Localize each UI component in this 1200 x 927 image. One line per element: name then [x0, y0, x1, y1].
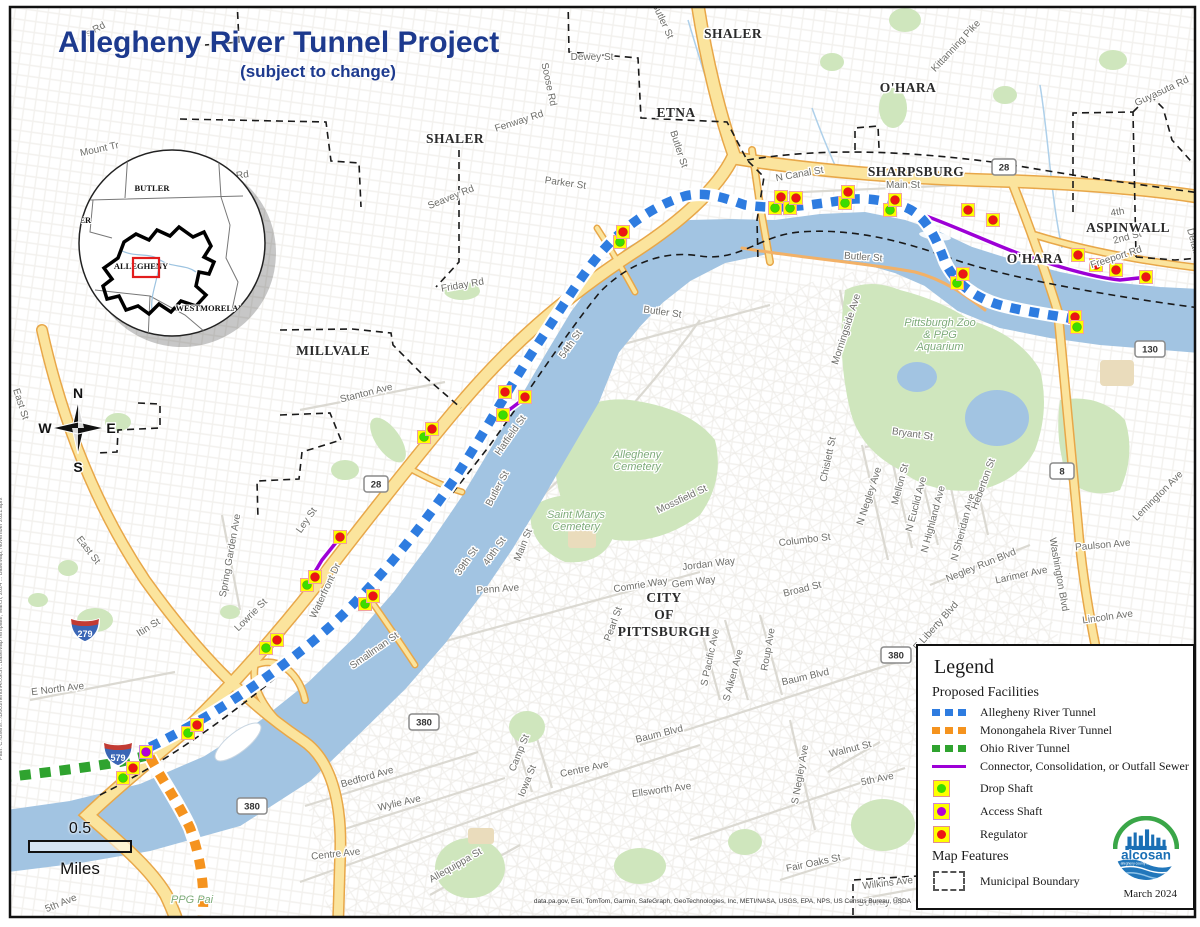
alcosan-logo-tagline: allegheny county sanitary authority — [1121, 861, 1172, 865]
document-path-note: Path: C:\Users\...\Documents\ArcGIS\...B… — [0, 498, 4, 761]
legend-symbol-dash — [932, 727, 972, 734]
map-document: s RdMount TrGeyer RdDewey StSoose RdFenw… — [0, 0, 1200, 927]
legend-symbol-line — [932, 765, 972, 769]
municipality-label: ETNA — [656, 105, 695, 120]
compass-south: S — [73, 459, 82, 475]
county-label: BUTLER — [135, 183, 171, 193]
svg-text:579: 579 — [110, 753, 125, 763]
alcosan-logo-name: alcosan — [1121, 847, 1171, 862]
regulator-marker — [1072, 249, 1085, 262]
legend-item-label: Connector, Consolidation, or Outfall Sew… — [980, 759, 1189, 774]
compass-east: E — [106, 420, 115, 436]
svg-text:28: 28 — [999, 163, 1010, 174]
svg-text:8: 8 — [1059, 467, 1064, 478]
svg-text:380: 380 — [244, 802, 260, 813]
regulator-marker — [519, 391, 532, 404]
legend-panel: Legend Proposed Facilities Allegheny Riv… — [916, 644, 1195, 910]
municipality-label: SHALER — [704, 26, 762, 41]
regulator-marker — [271, 634, 284, 647]
scale-bar-graphic — [28, 840, 132, 853]
legend-symbol-square-dot — [932, 826, 972, 843]
regulator-marker — [987, 214, 1000, 227]
legend-item: Connector, Consolidation, or Outfall Sew… — [932, 759, 1193, 774]
route-shield: 8 — [1050, 463, 1074, 479]
legend-item-label: Allegheny River Tunnel — [980, 705, 1096, 720]
legend-symbol-dashed-box — [932, 871, 972, 891]
route-shield: 28 — [364, 476, 388, 492]
legend-item-label: Ohio River Tunnel — [980, 741, 1070, 756]
area-label: PPG Pai — [171, 894, 214, 906]
regulator-marker — [191, 719, 204, 732]
legend-item-label: Monongahela River Tunnel — [980, 723, 1112, 738]
regulator-marker — [889, 194, 902, 207]
legend-item-label: Regulator — [980, 827, 1027, 842]
legend-item: Allegheny River Tunnel — [932, 705, 1193, 720]
legend-symbol-dash — [932, 709, 972, 716]
regulator-marker — [367, 590, 380, 603]
area-label: AlleghenyCemetery — [612, 449, 663, 473]
scale-value: 0.5 — [28, 820, 132, 838]
street-label: Main St — [886, 180, 920, 191]
municipality-label: ASPINWALL — [1086, 220, 1170, 235]
svg-text:28: 28 — [371, 480, 382, 491]
regulator-marker — [426, 423, 439, 436]
legend-date: March 2024 — [1124, 888, 1177, 900]
legend-item: Monongahela River Tunnel — [932, 723, 1193, 738]
drop-shaft-marker — [497, 409, 510, 422]
legend-item-label: Drop Shaft — [980, 781, 1033, 796]
basemap-attribution: data.pa.gov, Esri, TomTom, Garmin, SafeG… — [532, 898, 913, 905]
legend-item-label: Access Shaft — [980, 804, 1042, 819]
regulator-marker — [962, 204, 975, 217]
scale-unit: Miles — [28, 859, 132, 879]
route-shield: 28 — [992, 159, 1016, 175]
scale-bar: 0.5 Miles — [28, 820, 148, 879]
legend-symbol-square-dot — [932, 803, 972, 820]
area-label: Saint MarysCemetery — [547, 509, 606, 533]
route-shield: 130 — [1135, 341, 1165, 357]
alcosan-logo: alcosan allegheny county sanitary author… — [1113, 816, 1179, 882]
regulator-marker — [617, 226, 630, 239]
regulator-marker — [790, 192, 803, 205]
svg-text:380: 380 — [416, 718, 432, 729]
municipality-label: O'HARA — [880, 80, 936, 95]
municipality-label: SHALER — [426, 131, 484, 146]
legend-item-label: Municipal Boundary — [980, 874, 1080, 889]
route-shield: 380 — [881, 647, 911, 663]
route-shield: 380 — [409, 714, 439, 730]
svg-text:130: 130 — [1142, 345, 1158, 356]
municipality-label: MILLVALE — [296, 343, 370, 358]
legend-title: Legend — [934, 656, 1193, 679]
municipality-label: SHARPSBURG — [868, 164, 964, 179]
access-shaft-marker — [140, 746, 153, 759]
legend-item: Drop Shaft — [932, 780, 1193, 797]
compass-west: W — [38, 420, 52, 436]
regulator-marker — [334, 531, 347, 544]
legend-item: Ohio River Tunnel — [932, 741, 1193, 756]
drop-shaft-marker — [1071, 321, 1084, 334]
compass-north: N — [73, 385, 83, 401]
route-shield: 380 — [237, 798, 267, 814]
regulator-marker — [499, 386, 512, 399]
regulator-marker — [1140, 271, 1153, 284]
svg-text:380: 380 — [888, 651, 904, 662]
svg-text:279: 279 — [77, 629, 92, 639]
regulator-marker — [957, 268, 970, 281]
regulator-marker — [842, 186, 855, 199]
regulator-marker — [1110, 264, 1123, 277]
street-label: Dewey St — [571, 52, 614, 63]
municipality-label: O'HARA — [1007, 251, 1063, 266]
legend-symbol-dash — [932, 745, 972, 752]
regulator-marker — [309, 571, 322, 584]
legend-section-facilities: Proposed Facilities — [932, 685, 1193, 701]
regulator-marker — [127, 762, 140, 775]
legend-symbol-square-dot — [932, 780, 972, 797]
